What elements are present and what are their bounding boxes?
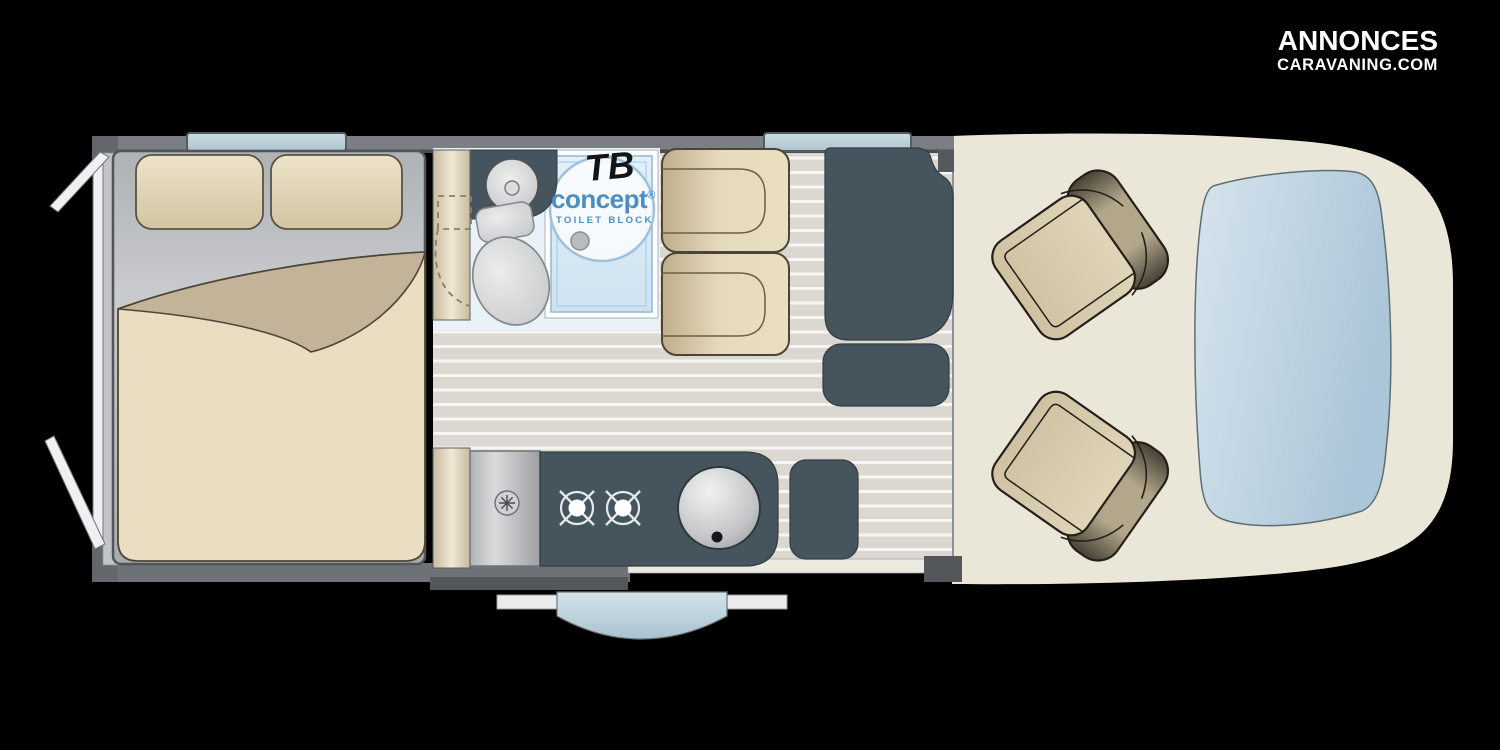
watermark-line2: CARAVANING.COM <box>1277 57 1438 74</box>
site-watermark: ANNONCES CARAVANING.COM <box>1277 27 1438 74</box>
shower-drain <box>571 232 589 250</box>
bottom-wall-sill <box>430 577 628 590</box>
windshield <box>1195 171 1391 526</box>
toilet-block-logo-name: concept® <box>551 186 655 212</box>
table-unit <box>825 148 953 340</box>
kitchen <box>433 448 858 568</box>
watermark-line1: ANNONCES <box>1277 27 1438 55</box>
sink-drain <box>712 532 723 543</box>
toilet-block-logo-abbr: TB <box>583 146 635 187</box>
bedroom-window <box>187 133 346 151</box>
pillow-left <box>136 155 263 229</box>
floorplan-page: ANNONCES CARAVANING.COM TB concept® TOIL… <box>0 0 1500 750</box>
door-rail-left <box>497 595 557 609</box>
kitchen-side-cabinet <box>790 460 858 559</box>
entry-step-block <box>924 556 962 582</box>
entry <box>497 592 787 639</box>
washbasin-drain-ring <box>505 181 519 195</box>
door-rail-right <box>727 595 787 609</box>
stool-cushion <box>823 344 949 406</box>
vent-fan-icon <box>495 491 519 515</box>
toilet-block-logo-subtitle: TOILET BLOCK <box>556 216 654 226</box>
rear-bedroom <box>113 151 425 564</box>
cab <box>950 133 1453 584</box>
toilet-block-logo-name-text: concept <box>551 184 647 214</box>
rear-opening <box>93 160 103 544</box>
kitchen-side-panel <box>433 448 470 568</box>
sliding-entry-door <box>557 592 727 639</box>
bench-seat-upper <box>662 149 789 252</box>
bench-seat-lower <box>662 253 789 355</box>
top-wall-corner-stub <box>938 150 954 172</box>
registered-mark-icon: ® <box>647 189 655 201</box>
floorplan-svg <box>0 0 1500 750</box>
pillow-right <box>271 155 402 229</box>
